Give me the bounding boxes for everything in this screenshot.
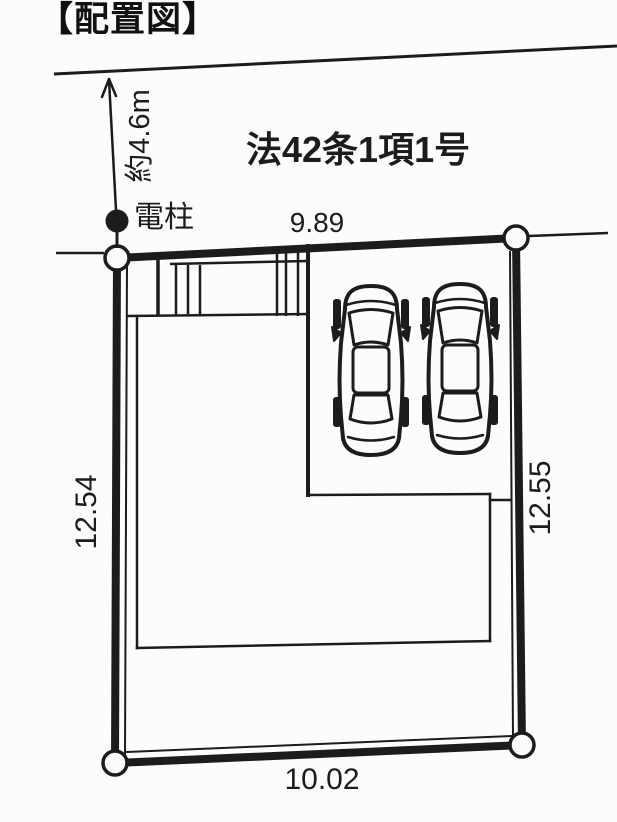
dimension-left: 12.54 — [72, 457, 102, 567]
corner-marker-bottom-left — [103, 751, 127, 775]
boundary-top — [117, 238, 516, 258]
parking-area — [332, 284, 499, 455]
road-width-measure-arrow — [102, 79, 116, 210]
corner-marker-top-right — [504, 226, 528, 250]
road-width-label: 約4.6m — [126, 81, 156, 191]
parking-bottom-line — [308, 494, 490, 495]
utility-pole-icon — [106, 210, 129, 249]
site-plan: 【配置図】 法42条1項1号 約4.6m 電柱 9.89 12.54 12.55… — [0, 0, 617, 822]
road-far-edge-line — [54, 46, 617, 74]
boundary-bottom — [115, 745, 522, 763]
road-near-edge-right-line — [529, 233, 608, 236]
entrance-steps-hatch — [158, 250, 308, 316]
car-2-icon — [421, 284, 499, 453]
building-bottom-wall — [137, 641, 490, 648]
utility-pole-label: 電柱 — [134, 203, 194, 233]
road-classification-label: 法42条1項1号 — [246, 132, 470, 168]
dimension-right: 12.55 — [526, 443, 556, 553]
corner-marker-top-left — [105, 246, 129, 270]
site-plan-drawing — [0, 0, 617, 822]
building-top-wall — [128, 314, 308, 316]
boundary-left — [115, 258, 117, 763]
corner-marker-bottom-right — [510, 733, 534, 757]
boundary-right — [516, 238, 522, 745]
dimension-top: 9.89 — [267, 209, 367, 237]
dimension-bottom: 10.02 — [262, 765, 382, 795]
page-title: 【配置図】 — [38, 2, 218, 37]
car-1-icon — [332, 286, 410, 455]
